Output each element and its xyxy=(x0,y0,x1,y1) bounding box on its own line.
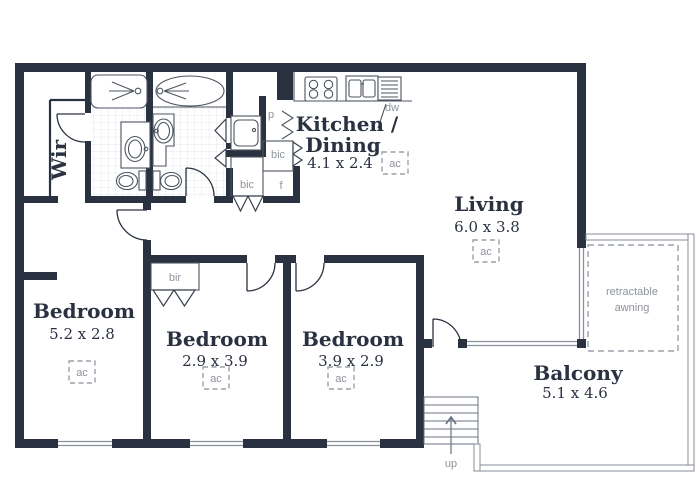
svg-text:ac: ac xyxy=(480,246,492,258)
stairs xyxy=(424,397,478,454)
wall-south-seg xyxy=(15,439,58,448)
bic-lower-doors xyxy=(233,196,263,211)
wall-north xyxy=(15,63,586,72)
bed1-stub-wall xyxy=(15,272,57,280)
label-pantry: p xyxy=(268,109,274,121)
bic-upper-doors xyxy=(293,142,302,166)
label-up: up xyxy=(445,458,457,470)
svg-text:ac: ac xyxy=(335,373,347,385)
label-bir: bir xyxy=(169,272,182,284)
label-bic-lower: bic xyxy=(240,179,255,191)
railing-north xyxy=(586,234,694,240)
bathtub xyxy=(156,76,224,106)
hall-north-wall-seg xyxy=(15,196,58,203)
bed1-east-wall-upper xyxy=(143,196,151,210)
fridge-south-wall xyxy=(263,196,300,203)
svg-text:ac: ac xyxy=(210,373,222,385)
bedrooms-north-wall-seg xyxy=(275,255,296,263)
door-bed1 xyxy=(117,210,147,240)
wir-east-wall-upper xyxy=(85,72,91,113)
label-fridge: f xyxy=(279,180,283,192)
dims-balcony: 5.1 x 4.6 xyxy=(542,384,608,402)
sliding-door-living-south xyxy=(467,339,577,348)
bedrooms-north-wall-seg xyxy=(143,255,247,263)
wall-south-seg xyxy=(243,439,327,448)
window-bed2 xyxy=(190,439,243,448)
balcony-corner-post xyxy=(577,240,586,248)
floor-plan: ac ac ac ac ac Wir Kitchen / Dining 4.1 … xyxy=(0,0,696,484)
dims-bed1: 5.2 x 2.8 xyxy=(49,325,115,343)
pantry-wall xyxy=(277,72,293,100)
ac-badge-bed2: ac xyxy=(203,367,229,389)
ac-badge-kitchen: ac xyxy=(382,152,408,174)
laundry-south-wall xyxy=(226,150,266,157)
label-dishwasher: dw xyxy=(385,102,399,114)
dims-bed3: 3.9 x 2.9 xyxy=(318,352,384,370)
dims-kitchen: 4.1 x 2.4 xyxy=(307,154,373,172)
window-bed1 xyxy=(58,439,112,448)
wir-east-wall-lower xyxy=(85,141,91,203)
laundry-trough xyxy=(231,116,261,150)
ac-badge-living: ac xyxy=(473,240,499,262)
bed1-east-wall-lower xyxy=(143,240,151,448)
svg-text:ac: ac xyxy=(76,367,88,379)
vanity-basin-ensuite xyxy=(121,122,150,168)
dims-bed2: 2.9 x 3.9 xyxy=(182,352,248,370)
bed2-bed3-divider-wall xyxy=(283,263,291,439)
railing-east xyxy=(688,234,694,471)
hall-north-wall-seg xyxy=(85,196,186,203)
railing-south xyxy=(477,465,694,471)
bathroom-east-wall-upper xyxy=(226,63,233,118)
door-bed2 xyxy=(247,263,275,291)
cooktop xyxy=(305,77,337,101)
toilet-ensuite xyxy=(117,171,147,190)
door-wir xyxy=(57,114,85,142)
label-living: Living xyxy=(454,192,523,216)
kitchen-sink xyxy=(346,76,378,101)
floor-plan-page: ac ac ac ac ac Wir Kitchen / Dining 4.1 … xyxy=(0,0,696,484)
ac-badge-bed1: ac xyxy=(69,361,95,383)
bir-doors xyxy=(153,290,195,306)
window-living-east xyxy=(577,248,586,339)
label-bed3: Bedroom xyxy=(302,327,404,351)
label-wir: Wir xyxy=(47,139,71,181)
toilet-bathroom xyxy=(153,171,182,190)
pantry-shelves-zigzag xyxy=(282,111,293,139)
label-bed2: Bedroom xyxy=(166,327,268,351)
label-balcony: Balcony xyxy=(533,361,624,385)
bedrooms-north-wall-seg xyxy=(324,255,424,263)
wall-east xyxy=(577,63,586,248)
label-bic-upper: bic xyxy=(271,149,286,161)
window-bed3 xyxy=(327,439,380,448)
shower xyxy=(91,75,147,108)
bed3-east-wall xyxy=(416,255,424,448)
awning-outline xyxy=(588,245,678,351)
up-arrow-icon xyxy=(446,417,456,454)
slider-post-east xyxy=(577,339,586,348)
bathroom-east-wall-lower xyxy=(226,168,233,203)
label-bed1: Bedroom xyxy=(33,299,135,323)
railing-west xyxy=(474,444,480,471)
door-balcony xyxy=(433,319,461,347)
label-awning-line2: awning xyxy=(615,302,650,314)
label-awning-line1: retractable xyxy=(606,286,658,298)
dims-living: 6.0 x 3.8 xyxy=(454,218,520,236)
svg-text:ac: ac xyxy=(389,158,401,170)
door-bed3 xyxy=(296,263,324,291)
slider-post-west xyxy=(458,339,467,348)
wall-west xyxy=(15,63,24,448)
wall-living-south-seg xyxy=(424,339,432,348)
ac-badge-bed3: ac xyxy=(328,367,354,389)
